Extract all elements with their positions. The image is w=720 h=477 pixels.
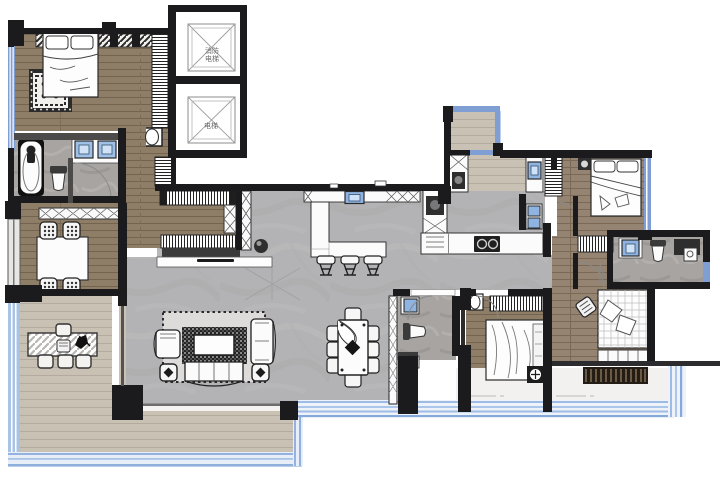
svg-text:电梯: 电梯 (204, 121, 218, 130)
svg-text:消防: 消防 (205, 46, 219, 55)
svg-text:电梯: 电梯 (205, 54, 219, 63)
